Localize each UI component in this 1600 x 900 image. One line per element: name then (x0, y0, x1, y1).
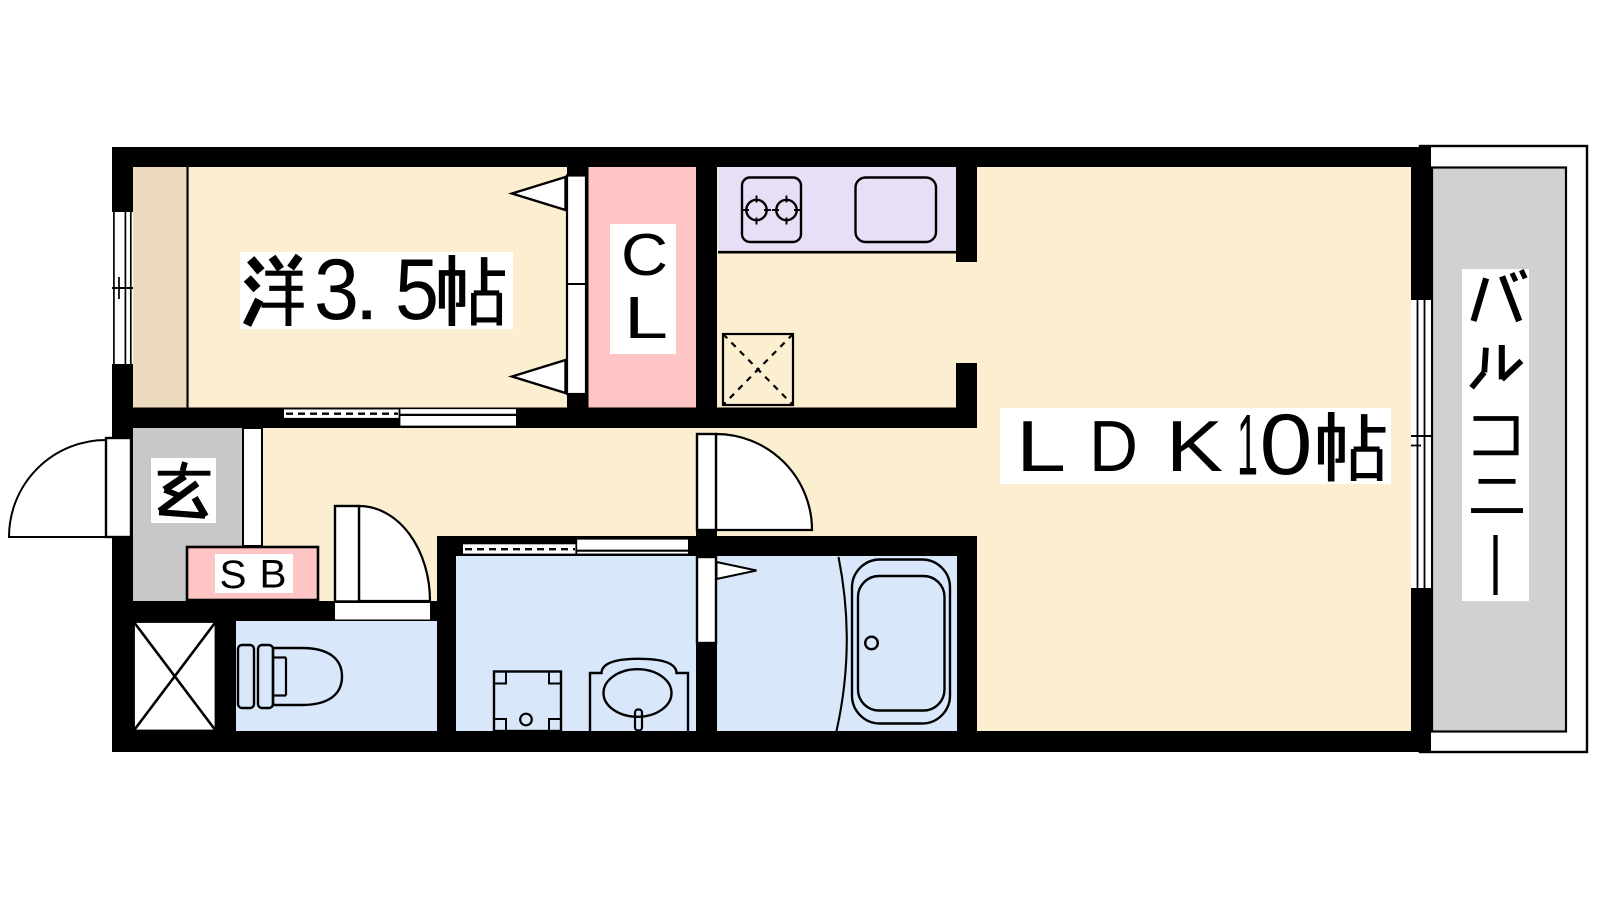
svg-text:L: L (1016, 407, 1066, 487)
svg-text:1: 1 (1237, 398, 1258, 494)
svg-text:5: 5 (395, 242, 439, 338)
svg-text:D: D (1089, 407, 1138, 487)
svg-text:3: 3 (314, 242, 359, 338)
svg-text:B: B (260, 553, 287, 597)
svg-text:C: C (621, 222, 668, 288)
svg-text:0: 0 (1260, 397, 1313, 493)
svg-text:L: L (624, 285, 668, 351)
svg-text:K: K (1166, 407, 1223, 487)
svg-text:S: S (220, 553, 247, 597)
